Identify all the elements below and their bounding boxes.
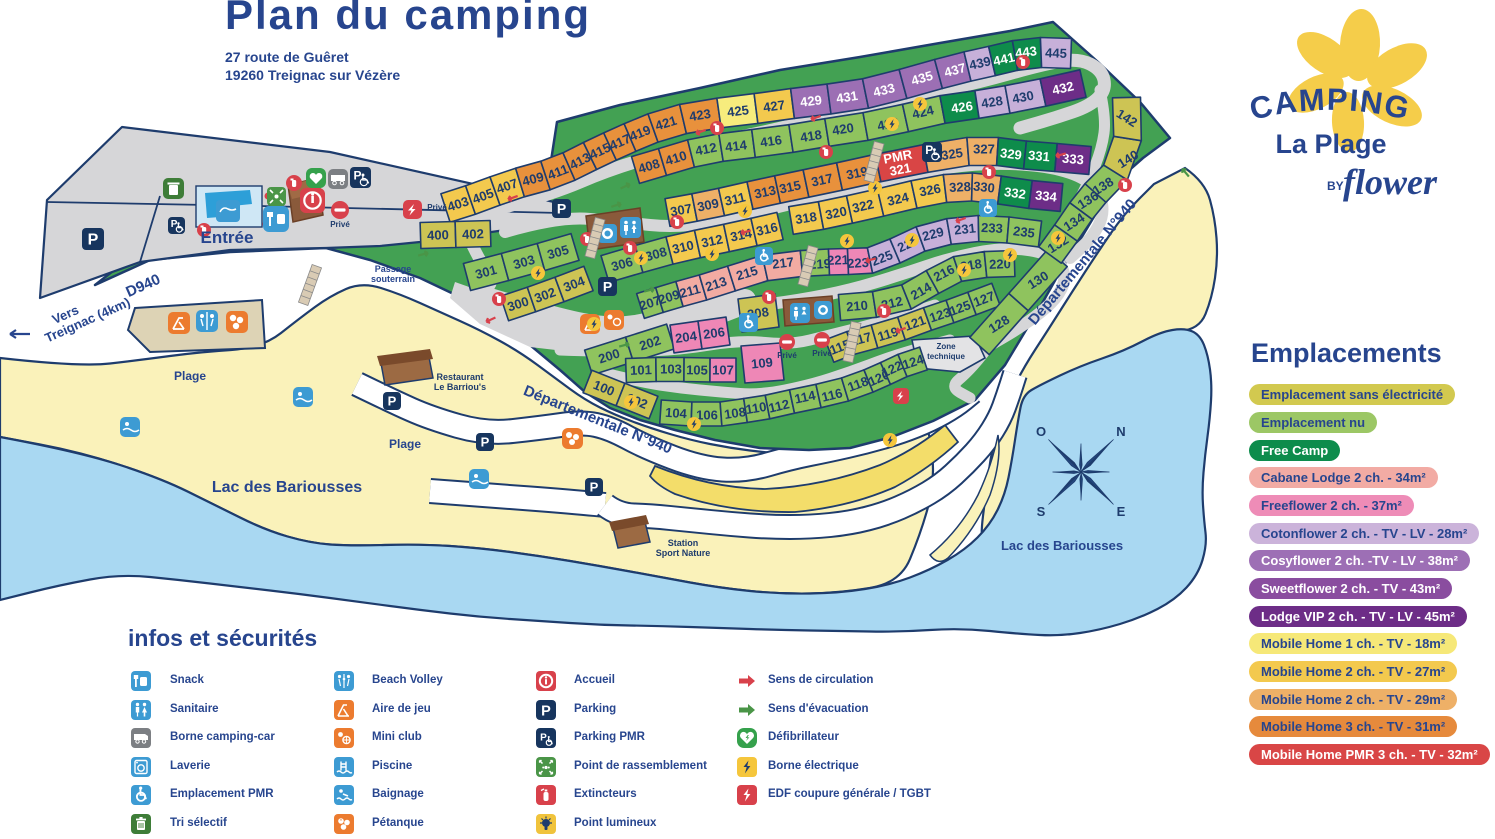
svg-text:104: 104 <box>665 405 688 422</box>
svg-text:233: 233 <box>981 220 1003 236</box>
svg-text:427: 427 <box>762 97 786 115</box>
svg-text:328: 328 <box>949 179 971 195</box>
svg-text:327: 327 <box>973 142 995 157</box>
svg-text:Plage: Plage <box>389 437 421 451</box>
svg-text:P: P <box>388 394 397 409</box>
svg-text:Sport Nature: Sport Nature <box>656 548 711 558</box>
svg-text:Privé: Privé <box>330 220 350 229</box>
svg-text:108: 108 <box>723 404 747 422</box>
svg-text:103: 103 <box>660 362 682 377</box>
svg-text:P: P <box>557 200 566 216</box>
svg-text:E: E <box>1117 504 1126 519</box>
svg-text:D940: D940 <box>123 271 163 301</box>
svg-text:S: S <box>1037 504 1046 519</box>
svg-text:221: 221 <box>827 252 849 268</box>
svg-text:P: P <box>541 703 551 719</box>
svg-text:Restaurant: Restaurant <box>436 372 483 382</box>
svg-text:330: 330 <box>972 178 995 195</box>
svg-text:332: 332 <box>1003 184 1027 202</box>
svg-text:107: 107 <box>712 363 734 378</box>
svg-text:Entrée: Entrée <box>201 228 254 247</box>
svg-text:416: 416 <box>759 132 783 150</box>
svg-text:La Plage: La Plage <box>1275 129 1386 159</box>
svg-text:Lac des Bariousses: Lac des Bariousses <box>212 479 362 496</box>
svg-text:P: P <box>590 480 599 495</box>
svg-text:331: 331 <box>1028 148 1051 165</box>
svg-text:Le Barriou's: Le Barriou's <box>434 382 486 392</box>
svg-text:P: P <box>481 435 490 450</box>
svg-text:Privé: Privé <box>777 351 797 360</box>
svg-text:P: P <box>88 232 99 249</box>
svg-text:426: 426 <box>950 98 974 116</box>
svg-text:P: P <box>603 278 612 294</box>
svg-text:Zone: Zone <box>936 342 956 351</box>
svg-text:flower: flower <box>1343 162 1438 202</box>
svg-text:souterrain: souterrain <box>371 274 415 284</box>
svg-text:206: 206 <box>702 324 726 342</box>
svg-text:414: 414 <box>724 137 748 155</box>
svg-text:231: 231 <box>953 220 976 237</box>
svg-text:445: 445 <box>1045 45 1067 61</box>
svg-text:217: 217 <box>771 254 794 272</box>
svg-text:101: 101 <box>630 362 652 378</box>
svg-text:402: 402 <box>462 226 484 242</box>
svg-text:Plage: Plage <box>174 369 206 383</box>
svg-text:technique: technique <box>927 352 965 361</box>
svg-text:Passage: Passage <box>375 264 412 274</box>
svg-text:425: 425 <box>726 102 749 120</box>
svg-text:N: N <box>1116 424 1125 439</box>
svg-text:400: 400 <box>427 227 449 243</box>
svg-text:429: 429 <box>799 92 822 110</box>
svg-text:334: 334 <box>1034 187 1058 204</box>
svg-text:235: 235 <box>1012 223 1035 241</box>
svg-text:204: 204 <box>674 328 698 346</box>
svg-text:329: 329 <box>999 145 1022 163</box>
svg-text:223: 223 <box>847 255 869 271</box>
svg-text:O: O <box>1036 424 1046 439</box>
svg-text:Privé: Privé <box>812 349 832 358</box>
svg-text:109: 109 <box>750 354 773 371</box>
svg-text:BY: BY <box>1327 179 1344 193</box>
svg-text:210: 210 <box>846 298 869 315</box>
svg-text:Station: Station <box>668 538 699 548</box>
svg-text:CAMPING: CAMPING <box>1246 82 1413 127</box>
svg-text:Lac des Bariousses: Lac des Bariousses <box>1001 538 1123 553</box>
svg-text:Privé: Privé <box>427 203 447 212</box>
svg-text:105: 105 <box>686 362 708 377</box>
